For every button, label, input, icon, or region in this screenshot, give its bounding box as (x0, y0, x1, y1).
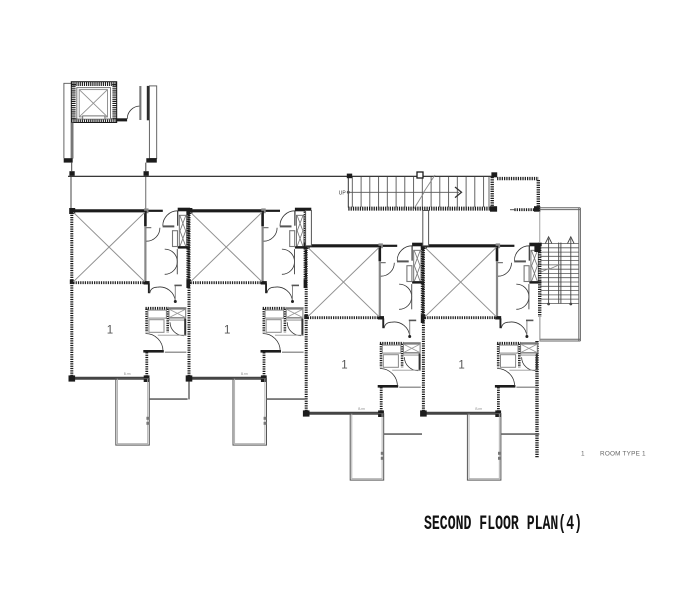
svg-text:B.rm: B.rm (475, 407, 482, 411)
svg-text:1: 1 (458, 359, 464, 371)
svg-text:B.rm: B.rm (358, 407, 365, 411)
svg-text:B.rm: B.rm (241, 372, 248, 376)
svg-text:B.rm: B.rm (124, 372, 131, 376)
svg-text:ROOM TYPE 1: ROOM TYPE 1 (600, 451, 646, 458)
svg-text:UP: UP (339, 191, 347, 197)
svg-text:1: 1 (581, 451, 585, 458)
svg-text:1: 1 (107, 324, 113, 336)
svg-text:1: 1 (341, 359, 347, 371)
svg-text:1: 1 (224, 324, 230, 336)
svg-text:SECOND FLOOR PLAN(4): SECOND FLOOR PLAN(4) (424, 513, 582, 536)
